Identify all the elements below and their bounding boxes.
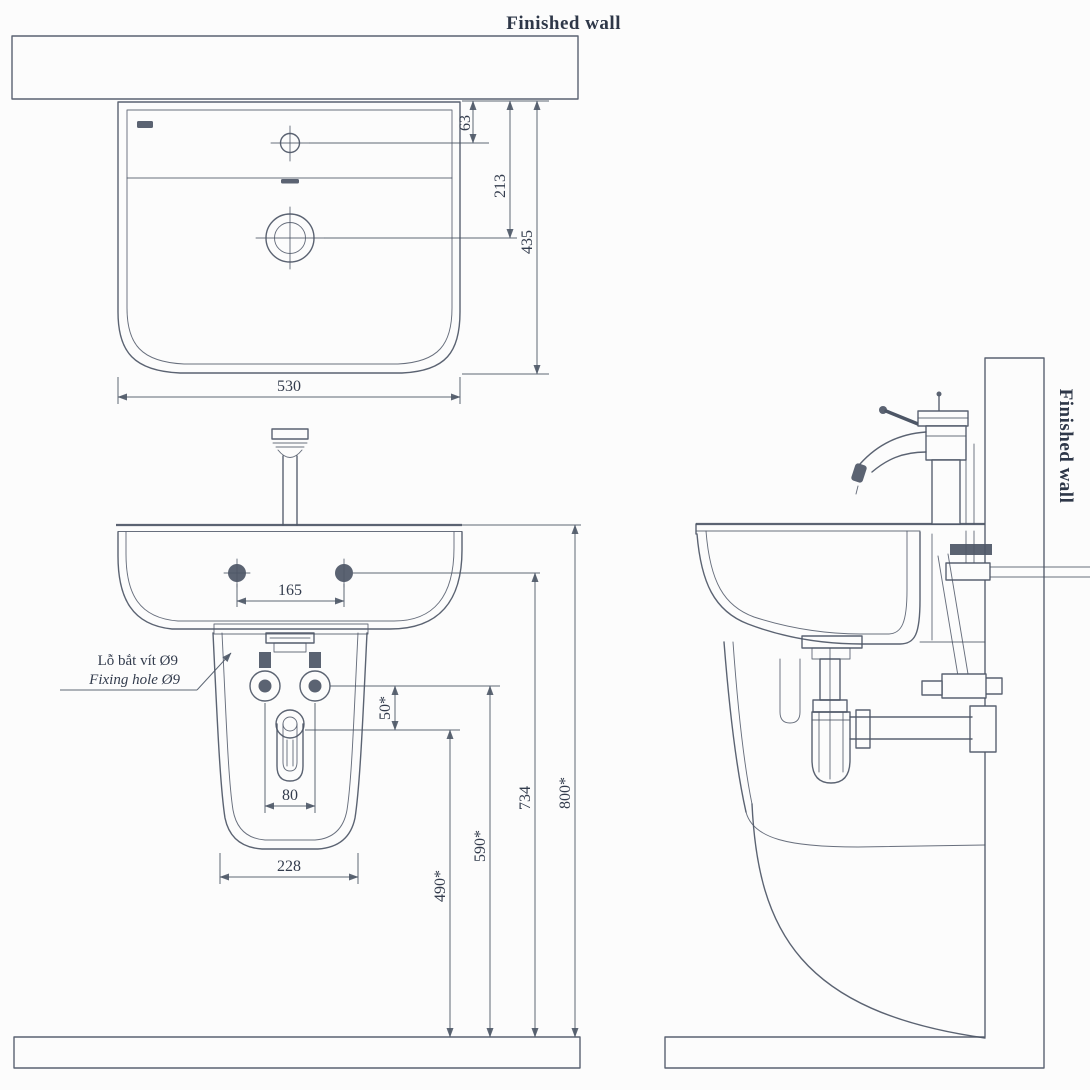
front-faucet <box>272 429 308 525</box>
plan-wall-section <box>12 36 578 99</box>
plan-sink-inner-outline <box>127 110 452 364</box>
fixing-hole-right <box>335 564 353 582</box>
dim-213: 213 <box>492 174 509 198</box>
dim-590: 590* <box>472 830 489 862</box>
dim-63: 63 <box>457 115 474 131</box>
dim-800: 800* <box>557 777 574 809</box>
side-view: Finished wall <box>665 358 1090 1068</box>
wall-escutcheon <box>970 706 996 752</box>
fixing-hole-callout: Lỗ bắt vít Ø9 Fixing hole Ø9 <box>60 653 231 690</box>
plan-drain-hole <box>256 207 517 269</box>
waste-arm-flange <box>856 710 870 748</box>
front-basin <box>116 525 462 634</box>
front-dimensions: 50* 80 228 490* 590* 734 800* <box>220 525 581 1037</box>
spout-aerator <box>851 463 868 484</box>
supply-fitting <box>946 563 990 580</box>
side-trap-assembly <box>780 636 996 783</box>
overflow-channel <box>780 659 800 723</box>
brand-logo-mark <box>137 121 153 128</box>
dim-165: 165 <box>278 582 302 599</box>
front-floor-section <box>14 1037 580 1068</box>
wall-fixing-bolt <box>950 544 992 555</box>
drawing-canvas: Finished wall 63 21 <box>0 0 1090 1090</box>
dim-734: 734 <box>517 786 534 810</box>
supply-stem-left <box>259 652 271 668</box>
plan-view: Finished wall 63 21 <box>12 13 621 404</box>
finished-wall-top-label: Finished wall <box>506 13 621 34</box>
supply-stem-right <box>309 652 321 668</box>
front-trap-assembly <box>250 633 330 781</box>
fixing-hole-left <box>228 564 246 582</box>
dim-530: 530 <box>277 378 301 395</box>
plan-overflow-slot <box>281 179 299 184</box>
technical-drawing: Finished wall 63 21 <box>0 0 1090 1090</box>
faucet-lever <box>886 411 918 424</box>
dim-228: 228 <box>277 858 301 875</box>
front-view: 165 50 <box>14 429 581 1068</box>
drain-flange <box>802 636 862 648</box>
bottle-trap <box>812 712 850 783</box>
dim-490: 490* <box>432 870 449 902</box>
dim-50: 50* <box>377 696 394 720</box>
drain-trap-inlet <box>276 710 304 738</box>
plan-dimensions: 63 213 435 530 <box>118 101 549 404</box>
side-basin-section <box>696 524 985 644</box>
valve-handle <box>922 681 942 695</box>
fixing-hole-label-vi: Lỗ bắt vít Ø9 <box>98 653 178 669</box>
angle-valve <box>942 674 986 698</box>
dim-435: 435 <box>519 230 536 254</box>
front-pedestal <box>213 633 367 849</box>
fixing-holes: 165 <box>224 559 540 607</box>
finished-wall-side-label: Finished wall <box>1055 389 1076 504</box>
fixing-hole-label-en: Fixing hole Ø9 <box>88 672 180 688</box>
side-faucet <box>851 392 968 525</box>
dim-80: 80 <box>282 787 298 804</box>
side-pedestal-profile <box>724 642 985 1038</box>
